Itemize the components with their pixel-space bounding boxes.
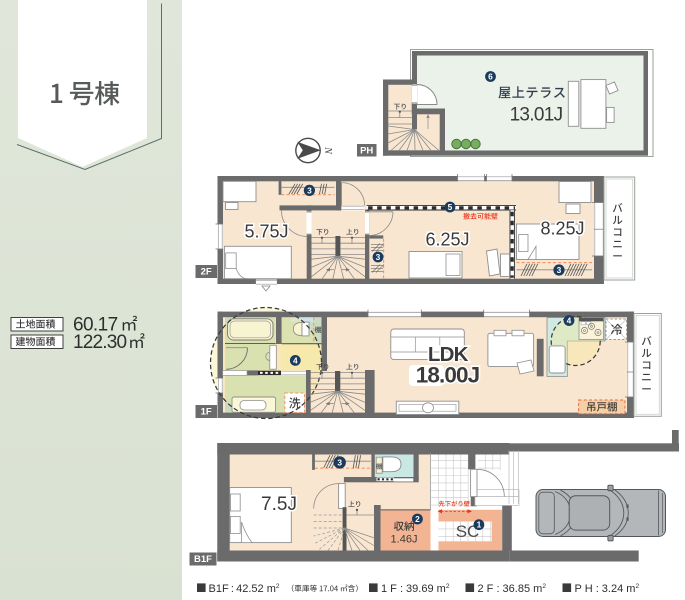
svg-text:PH: PH [360,146,373,157]
svg-text:B1F : 42.52 m2: B1F : 42.52 m2 [209,583,280,595]
svg-text:3: 3 [557,265,562,275]
svg-text:6: 6 [488,71,493,81]
svg-text:13.01J: 13.01J [510,105,563,126]
svg-text:N: N [322,146,333,155]
svg-text:2: 2 [415,514,420,524]
svg-text:7.5J: 7.5J [261,494,297,515]
svg-text:4: 4 [293,355,298,365]
svg-text:5: 5 [448,202,453,212]
svg-text:P H : 3.24 m2: P H : 3.24 m2 [575,583,640,595]
svg-text:8.25J: 8.25J [540,219,584,239]
svg-text:1.46J: 1.46J [391,534,418,546]
svg-text:18.00J: 18.00J [416,363,479,388]
svg-text:B1F: B1F [194,554,212,565]
svg-text:6.25J: 6.25J [425,230,469,250]
svg-text:1F: 1F [201,407,212,418]
svg-text:3: 3 [337,457,342,467]
svg-text:1 F : 39.69 m2: 1 F : 39.69 m2 [381,583,450,595]
svg-text:1: 1 [477,520,482,530]
svg-text:4: 4 [567,315,572,325]
svg-text:3: 3 [376,252,381,262]
svg-text:122.30: 122.30 [73,332,127,353]
svg-text:3: 3 [307,185,312,195]
svg-text:2 F : 36.85 m2: 2 F : 36.85 m2 [478,583,547,595]
svg-text:5.75J: 5.75J [244,222,288,242]
svg-text:2F: 2F [201,267,212,278]
